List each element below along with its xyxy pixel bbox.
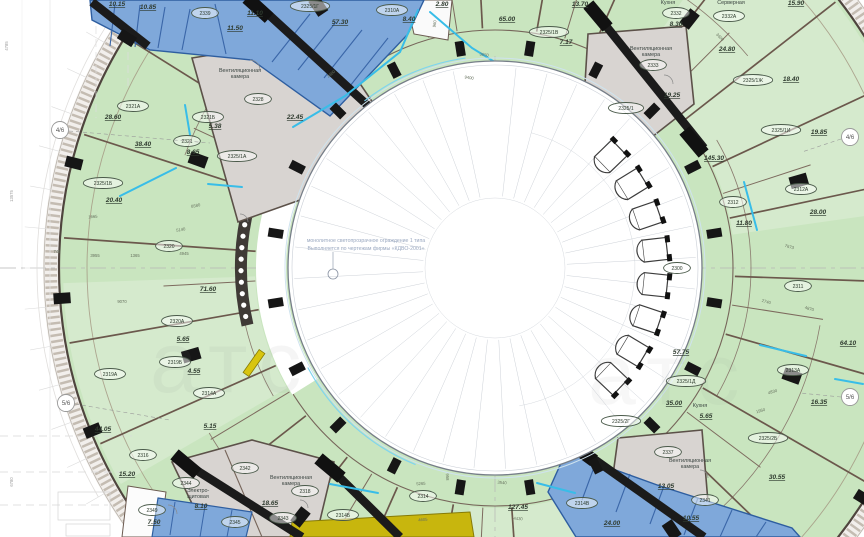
wall-dot: [239, 245, 244, 250]
room-area: 18.40: [783, 76, 800, 83]
wall-dot: [240, 234, 245, 239]
corner-tick: [30, 346, 52, 350]
room-tag: 2325/1: [618, 106, 634, 112]
dimension-label: 960: [432, 19, 438, 27]
room-name-line: щитовая: [187, 494, 209, 500]
wall-dot: [242, 222, 247, 227]
room-name-line: Кухня: [661, 0, 676, 6]
room-area: 10.15: [109, 1, 126, 8]
room-area: 18.65: [262, 500, 279, 507]
room-area: 24.80: [718, 46, 736, 53]
room-tag: 2325/1В: [540, 30, 559, 36]
room-tag: 2333: [647, 63, 658, 69]
room-area: 13.70: [572, 1, 589, 8]
niche-body: [642, 237, 668, 262]
room-area: 8.30: [670, 21, 683, 28]
corner-tick: [67, 458, 87, 467]
room-tag: 2320: [163, 244, 174, 250]
room-tag: 2313A: [786, 368, 801, 374]
room-name-line: Вентиляционная: [669, 458, 711, 464]
room-name: Электро-щитовая: [187, 488, 210, 500]
room-tag: 2325/2Г: [612, 419, 630, 425]
room-tag: 2316: [137, 453, 148, 459]
room-area: 35.00: [666, 400, 683, 407]
room-area: 15.90: [788, 0, 805, 7]
room-tag: 2332A: [722, 14, 737, 20]
room-tag: 2344: [180, 481, 191, 487]
room-area: 44.05: [94, 426, 112, 433]
center-note-line1: монолитное светопрозрачное ограждение 1 …: [307, 238, 425, 244]
room-name: Кухня: [693, 403, 708, 409]
room-tag: 2341: [699, 498, 710, 504]
room-name-line: Вентиляционная: [630, 46, 672, 52]
room-tag: 2325/1A: [228, 154, 247, 160]
room-area: 30.55: [769, 474, 786, 481]
niche-tick: [664, 235, 670, 243]
room-tag: 2343: [277, 516, 288, 522]
room-tag: 2314: [417, 494, 428, 500]
room-area: 57.75: [673, 349, 690, 356]
room-tag: 2314В: [575, 501, 590, 507]
room-area: 7.17: [560, 39, 573, 46]
room-tag: 2345: [229, 520, 240, 526]
room-tag: 2328: [252, 97, 263, 103]
wall-dot: [239, 280, 244, 285]
room-area: 5.65: [177, 336, 190, 343]
room-area: 8.40: [403, 16, 416, 23]
room-area: 5.15: [204, 423, 217, 430]
room-tag: 2314A: [202, 391, 217, 397]
room-area: 28.60: [104, 114, 122, 121]
room-tag: 2318: [299, 489, 310, 495]
dimension-label: 9070: [117, 299, 127, 304]
wall-dot: [238, 268, 243, 273]
room-tag: 2325/1И: [772, 128, 791, 134]
room-area: 24.00: [603, 520, 621, 527]
room-area: 71.60: [200, 286, 217, 293]
room-name-line: камера: [231, 74, 249, 80]
room-area: 15.20: [119, 471, 136, 478]
room-tag: 2321Б: [201, 115, 216, 121]
corner-tick: [25, 227, 47, 229]
dimension-label: 3540: [497, 480, 507, 486]
corner-tick: [51, 107, 72, 115]
room-area: 19.25: [664, 92, 681, 99]
wall-dot: [241, 303, 246, 308]
dimension-label: 745: [54, 249, 62, 254]
room-area: 28.00: [809, 209, 827, 216]
center-note-line2: Выполняется по чертежам фирмы «КДВО-2001…: [307, 246, 424, 252]
room-name-line: Электро-: [187, 488, 210, 494]
grid-bubble-label: 5/6: [62, 401, 71, 407]
dimension-label: 4430: [513, 516, 523, 522]
room-area: 2.80: [435, 1, 449, 8]
corner-tick: [30, 186, 52, 190]
room-tag: 2321A: [126, 104, 141, 110]
niche-tick: [665, 292, 671, 299]
room-area: 11.80: [736, 220, 752, 227]
room-area: 11.10: [247, 10, 263, 17]
room-area: 145.30: [704, 155, 724, 162]
room-tag: 2325/1Г: [301, 4, 319, 10]
room-area: 20.40: [105, 197, 123, 204]
room-tag: 2311: [793, 284, 804, 290]
grid-bubble-label: 4/6: [56, 128, 65, 134]
room-tag: 2349: [146, 508, 157, 514]
dimension-label: 4945: [179, 251, 189, 256]
room-name: Серверная: [717, 0, 745, 6]
room-tag: 2320A: [170, 319, 185, 325]
room-tag: 2310A: [385, 8, 400, 14]
margin-sketch: [58, 492, 110, 520]
room-tag: 2300: [671, 266, 682, 272]
floor-plan-sheet: атсатс233910.1510.8511.1011.502321A23282…: [0, 0, 864, 537]
room-tag: 2312A: [794, 187, 809, 193]
room-name-line: камера: [681, 464, 699, 470]
niche-tick: [667, 254, 673, 262]
margin-sketch: [66, 524, 110, 536]
room-area: 8.10: [195, 503, 208, 510]
room-area: 4.55: [187, 368, 201, 375]
room-name-line: Кухня: [693, 403, 708, 409]
room-tag: 2321: [181, 139, 192, 145]
room-tag: 2325/1Б: [94, 181, 113, 187]
floor-plan-canvas: атсатс233910.1510.8511.1011.502321A23282…: [0, 0, 864, 537]
room-tag: 2332: [670, 11, 681, 17]
room-tag: 2339: [199, 11, 210, 17]
room-area: 10.55: [683, 515, 700, 522]
dimension-label: 1665: [88, 214, 98, 220]
room-tag: 2342: [239, 466, 250, 472]
room-area: 10.85: [140, 4, 157, 11]
room-tag: 2312: [727, 200, 738, 206]
room-area: 127.45: [508, 504, 528, 511]
margin-dimension: 13575: [9, 190, 14, 202]
room-tag: 2337: [662, 450, 673, 456]
room-name-line: Серверная: [717, 0, 745, 6]
corner-tick: [25, 307, 47, 309]
grid-bubble-label: 5/6: [846, 395, 855, 401]
dimension-label: 958: [445, 473, 450, 481]
corner-tick: [67, 69, 87, 78]
room-tag: 2314Б: [336, 513, 351, 519]
room-area: 5.38: [209, 123, 222, 130]
grid-bubble-label: 4/6: [846, 135, 855, 141]
room-area: 7.50: [148, 519, 161, 526]
room-area: 11.50: [227, 25, 243, 32]
room-area: 65.00: [499, 16, 516, 23]
wall-dot: [239, 257, 244, 262]
room-name-line: камера: [642, 52, 660, 58]
room-area: 13.05: [658, 483, 675, 490]
room-area: 5.65: [700, 413, 713, 420]
corner-tick: [86, 493, 105, 504]
room-tag: 2325/2Б: [759, 436, 778, 442]
column: [53, 292, 71, 304]
room-area: 38.40: [135, 141, 152, 148]
room-area: 22.45: [286, 114, 304, 121]
room-area: 16.35: [811, 399, 828, 406]
room-area: 19.85: [811, 129, 828, 136]
room-area: 57.30: [332, 19, 349, 26]
corner-tick: [51, 422, 72, 430]
room-area: 64.10: [840, 340, 857, 347]
room-tag: 2325/1Д: [677, 379, 696, 385]
room-tag: 2319Б: [168, 360, 183, 366]
room-name-line: Вентиляционная: [270, 475, 312, 481]
dimension-label: 5265: [416, 481, 426, 487]
dimension-label: 4605: [418, 517, 428, 523]
dimension-label: 3955: [90, 253, 100, 258]
room-name: Кухня: [661, 0, 676, 6]
watermark-text: атс: [588, 327, 751, 423]
margin-dimension: 6780: [9, 477, 14, 487]
room-area: 8.65: [187, 149, 200, 156]
niche-body: [642, 273, 668, 297]
wall-dot: [240, 291, 245, 296]
dimension-label: 1365: [130, 253, 140, 258]
room-tag: 2319A: [103, 372, 118, 378]
niche-tick: [667, 273, 673, 280]
room-name-line: Вентиляционная: [219, 68, 261, 74]
room-tag: 2325/1Ж: [743, 78, 763, 84]
margin-dimension: 4785: [4, 41, 9, 51]
